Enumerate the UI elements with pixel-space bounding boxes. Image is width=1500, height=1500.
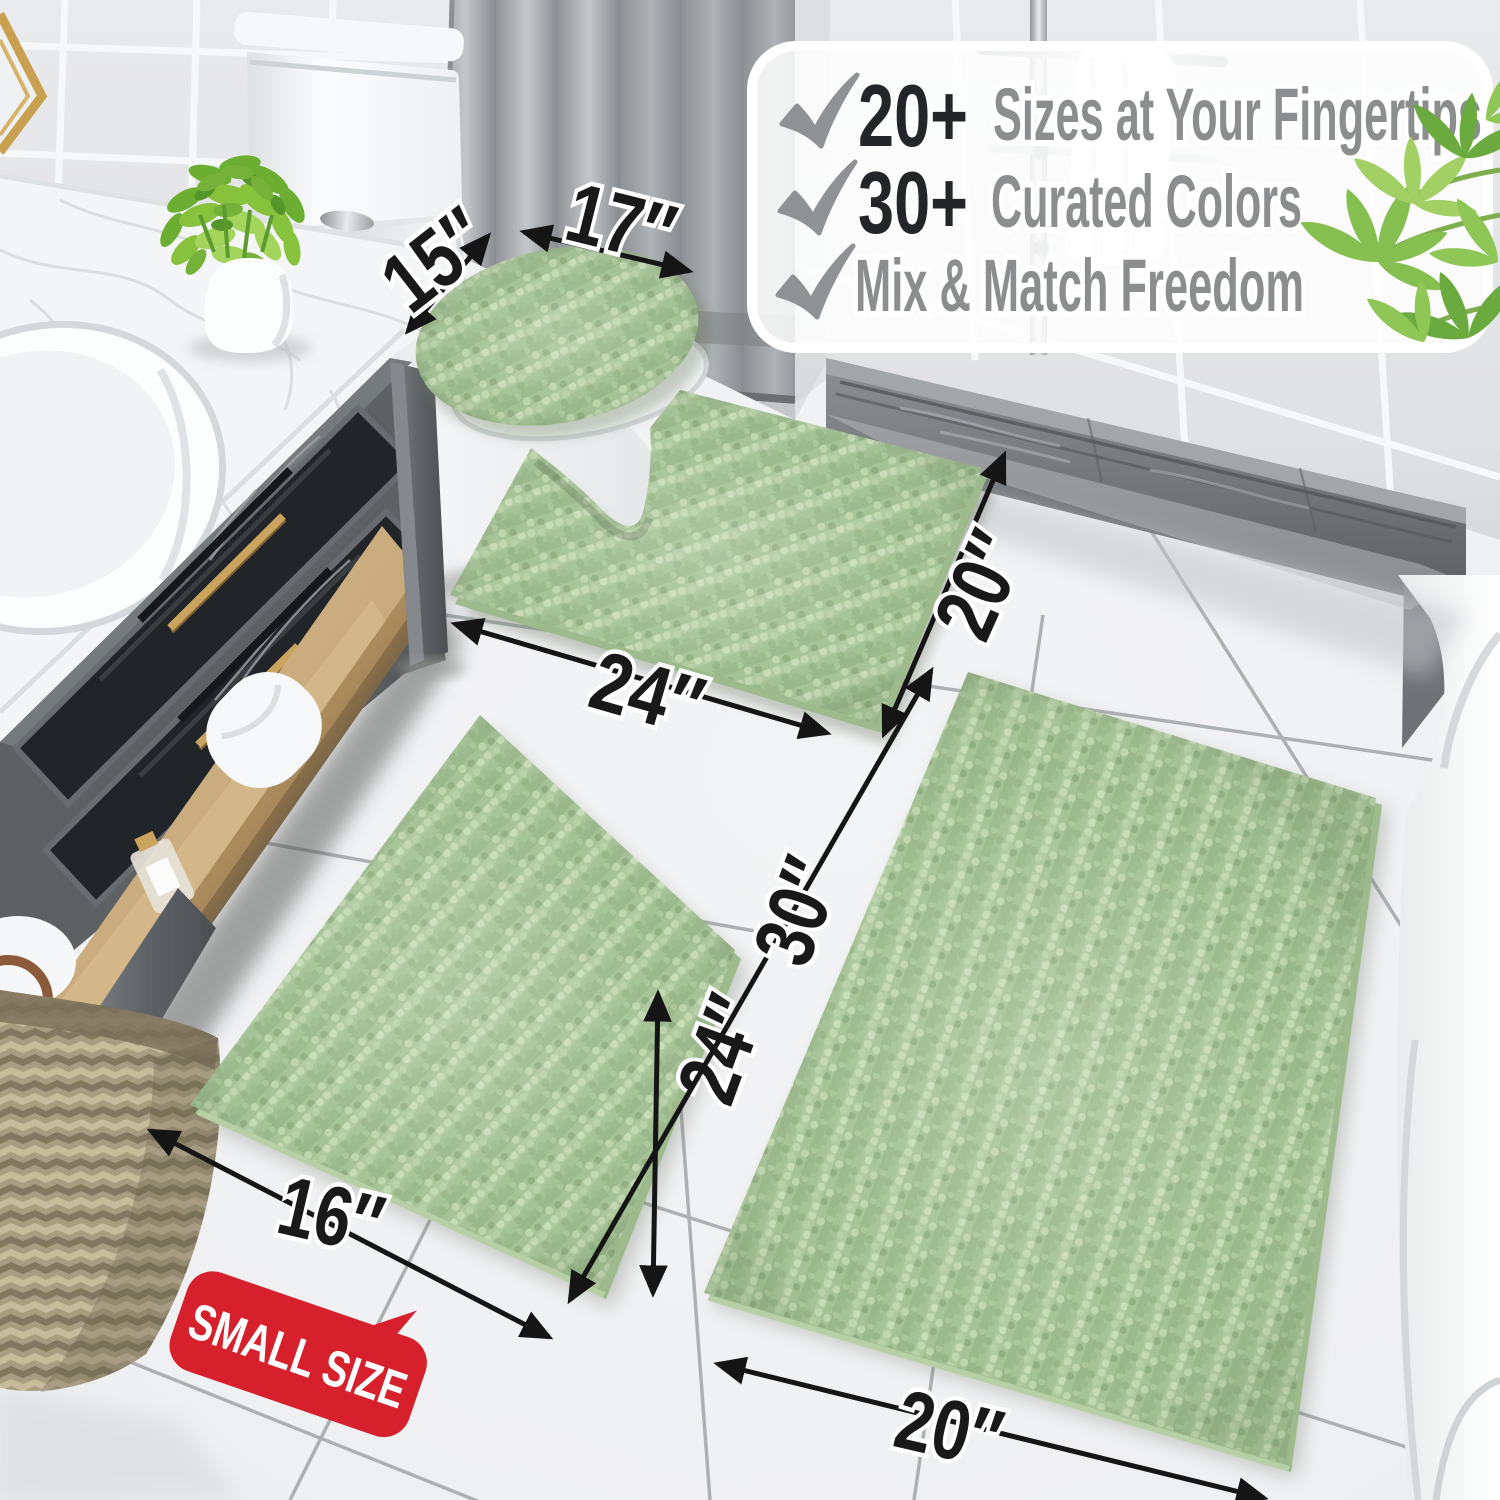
svg-text:Mix & Match Freedom: Mix & Match Freedom <box>855 244 1304 327</box>
svg-text:20+: 20+ <box>858 66 968 165</box>
svg-text:30+: 30+ <box>858 153 968 252</box>
svg-text:Curated Colors: Curated Colors <box>991 160 1302 243</box>
